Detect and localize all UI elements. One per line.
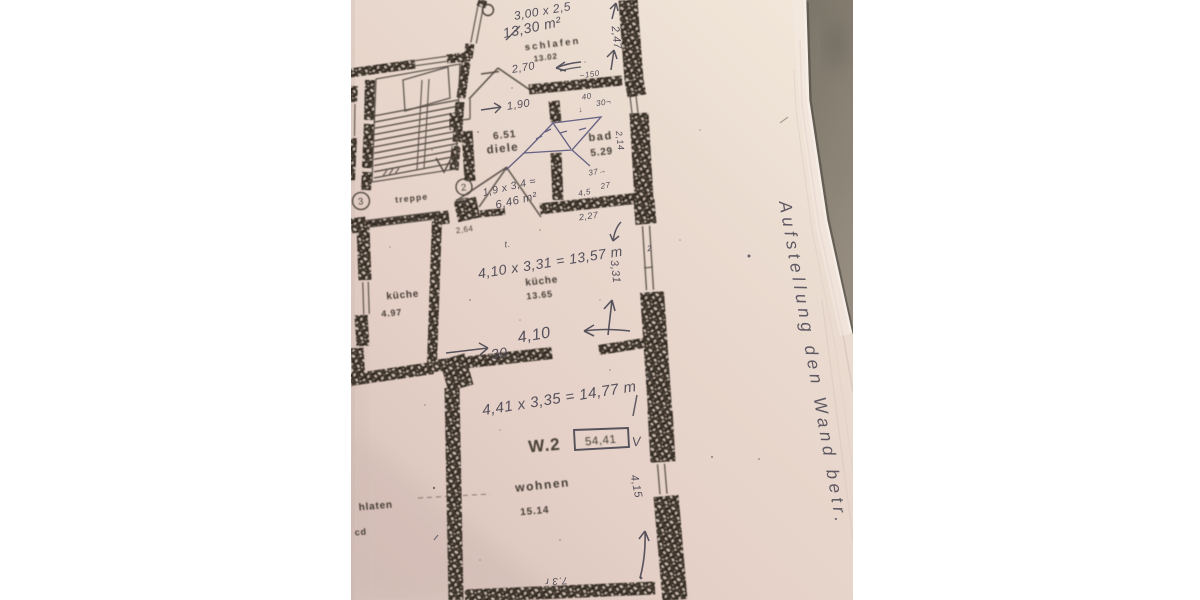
svg-text:3: 3	[358, 196, 364, 207]
svg-text:bad: bad	[588, 130, 613, 144]
svg-text:W.2: W.2	[528, 435, 562, 457]
svg-text:7.3 r: 7.3 r	[544, 574, 567, 587]
svg-text:5.29: 5.29	[590, 146, 614, 159]
svg-text:40: 40	[581, 91, 592, 101]
svg-text:4.97: 4.97	[381, 307, 403, 319]
svg-text:27: 27	[599, 180, 611, 191]
svg-text:30: 30	[490, 344, 509, 362]
svg-text:cd: cd	[354, 527, 367, 538]
svg-text:2: 2	[461, 182, 467, 193]
